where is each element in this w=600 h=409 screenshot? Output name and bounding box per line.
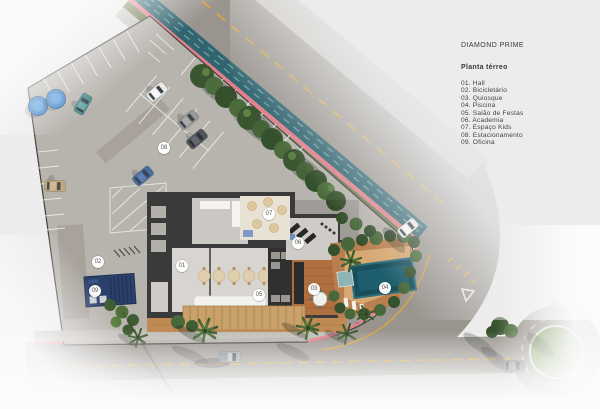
- unit-badge-parking: 08: [158, 142, 170, 154]
- spa: [337, 270, 354, 287]
- legend-item: 04. Piscina: [461, 102, 593, 109]
- legend-panel: DIAMOND PRIME Planta térreo 01. Hall 02.…: [461, 42, 593, 147]
- unit-badge-hall: 01: [176, 260, 188, 272]
- unit-badge-workshop: 09: [89, 285, 101, 297]
- project-title: DIAMOND PRIME: [461, 42, 593, 49]
- legend-item: 03. Quiosque: [461, 95, 593, 102]
- site-plan-screenshot: 01 02 03 04 05 06 07 08 09 DIAMOND PRIME…: [0, 0, 600, 409]
- legend-item: 09. Oficina: [461, 139, 593, 146]
- legend-title: Planta térreo: [461, 64, 593, 71]
- legend-item: 02. Bicicletário: [461, 87, 593, 94]
- legend-list: 01. Hall 02. Bicicletário 03. Quiosque 0…: [461, 80, 593, 147]
- unit-badge-gym: 06: [292, 237, 304, 249]
- unit-badge-bike-storage: 02: [92, 256, 104, 268]
- legend-item: 05. Salão de Festas: [461, 110, 593, 117]
- unit-badge-party-room: 05: [253, 289, 265, 301]
- kiosk-counter: [294, 262, 304, 304]
- unit-badge-kids-space: 07: [263, 208, 275, 220]
- legend-item: 01. Hall: [461, 80, 593, 87]
- roundabout: [510, 306, 600, 398]
- unit-badge-pool: 04: [379, 282, 391, 294]
- unit-badge-kiosk: 03: [308, 283, 320, 295]
- legend-item: 08. Estacionamento: [461, 132, 593, 139]
- legend-item: 06. Academia: [461, 117, 593, 124]
- legend-item: 07. Espaço Kids: [461, 124, 593, 131]
